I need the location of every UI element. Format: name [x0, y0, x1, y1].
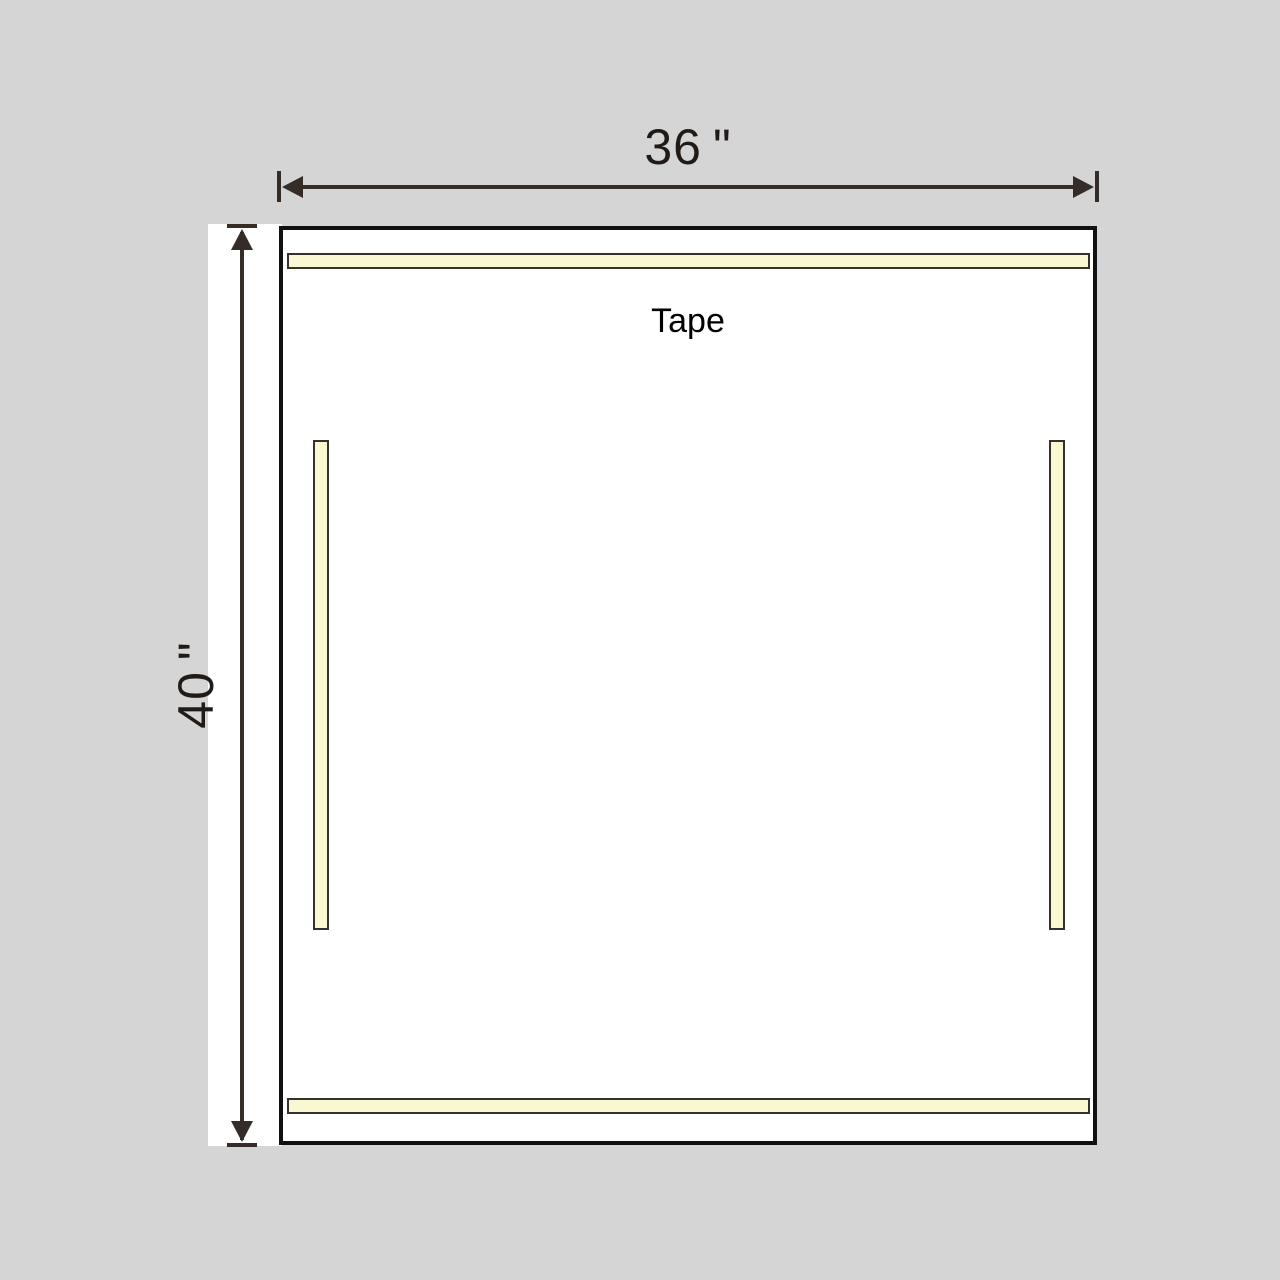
tape-strip-left [313, 440, 329, 930]
tape-strip-top [287, 253, 1090, 269]
tape-label: Tape [279, 302, 1097, 341]
arrow-left-icon [282, 176, 303, 198]
arrow-down-icon [231, 1121, 253, 1142]
height-dimension-tick-bottom [227, 1143, 257, 1147]
arrow-up-icon [231, 229, 253, 250]
width-dimension-line [290, 185, 1086, 189]
diagram-canvas: 36 " 40 " Tape [0, 0, 1280, 1280]
panel-outline [279, 226, 1097, 1145]
arrow-right-icon [1073, 176, 1094, 198]
width-dimension-label: 36 " [279, 118, 1097, 176]
height-dimension-line [240, 232, 244, 1140]
height-dimension-tick-top [227, 224, 257, 228]
tape-strip-right [1049, 440, 1065, 930]
height-dimension-label: 40 " [167, 641, 225, 728]
tape-strip-bottom [287, 1098, 1090, 1114]
